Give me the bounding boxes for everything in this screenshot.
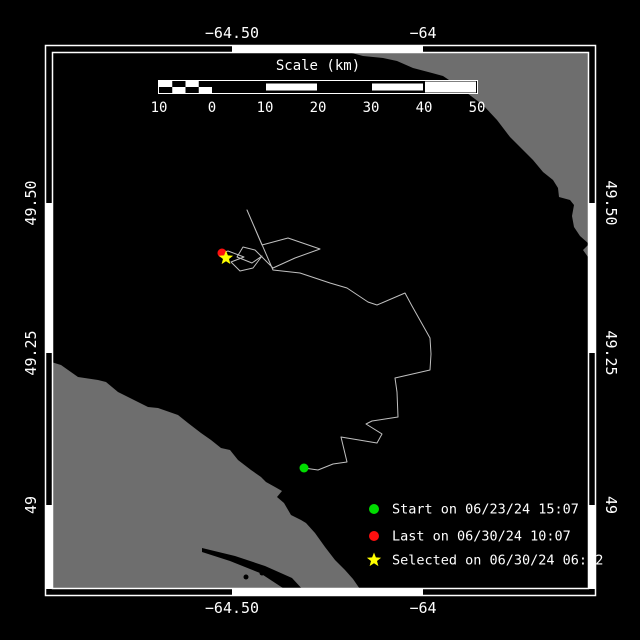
scale-bar-title: Scale (km)	[276, 58, 360, 74]
legend-marker-start	[369, 504, 379, 514]
scale-bar-segment	[425, 82, 476, 93]
pond	[260, 571, 265, 576]
lat-label-right: 49	[602, 496, 620, 514]
scale-bar-segment	[372, 84, 423, 91]
legend-label-last: Last on 06/30/24 10:07	[392, 529, 571, 545]
scale-bar-checker-cell	[199, 87, 212, 93]
scale-tick-label: 20	[310, 100, 327, 116]
start-marker[interactable]	[300, 464, 309, 473]
lat-label-left: 49.50	[22, 180, 40, 225]
scale-tick-label: 30	[363, 100, 380, 116]
frame-band-segment-left	[46, 203, 53, 353]
scale-bar-checker-cell	[172, 87, 185, 93]
lat-label-right: 49.25	[602, 330, 620, 375]
scale-tick-label: 10	[257, 100, 274, 116]
lat-label-left: 49	[22, 496, 40, 514]
plot-window: Scale (km)1001020304050−64.50−64−64.50−6…	[0, 0, 640, 640]
frame-band-segment-right	[589, 203, 596, 353]
scale-tick-label: 50	[469, 100, 486, 116]
legend-label-start: Start on 06/23/24 15:07	[392, 502, 579, 518]
legend: Start on 06/23/24 15:07Last on 06/30/24 …	[367, 502, 603, 569]
scale-tick-label: 40	[416, 100, 433, 116]
frame-band-segment-left	[46, 505, 53, 589]
scale-bar-checker-cell	[186, 81, 199, 87]
frame-band-segment-bottom	[232, 589, 423, 596]
track-map-plot: Scale (km)1001020304050−64.50−64−64.50−6…	[0, 0, 640, 640]
lon-label-top: −64.50	[205, 24, 259, 42]
lat-label-right: 49.50	[602, 180, 620, 225]
lat-label-left: 49.25	[22, 330, 40, 375]
pond	[244, 575, 249, 580]
scale-bar-segment	[266, 84, 317, 91]
lon-label-bottom: −64	[409, 599, 436, 617]
legend-marker-last	[369, 531, 379, 541]
lon-label-bottom: −64.50	[205, 599, 259, 617]
lon-label-top: −64	[409, 24, 436, 42]
scale-bar-checker-cell	[159, 81, 172, 87]
frame-band-segment-top	[232, 46, 423, 53]
scale-tick-label: 0	[208, 100, 216, 116]
legend-label-selected: Selected on 06/30/24 06:22	[392, 553, 603, 569]
scale-tick-label: 10	[151, 100, 168, 116]
frame-band-segment-right	[589, 505, 596, 589]
